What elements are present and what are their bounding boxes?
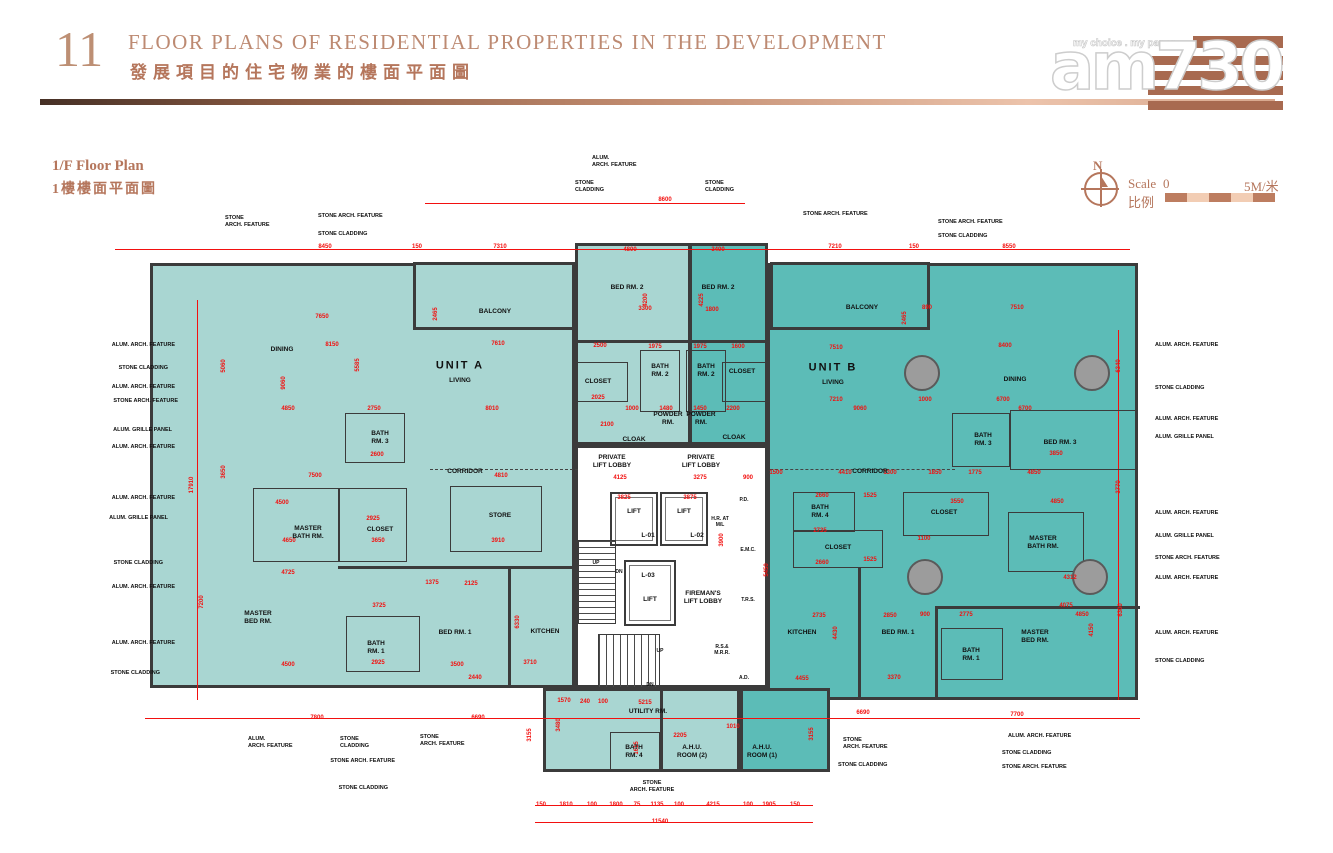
dimension-label: 240 <box>580 699 590 705</box>
dimension-label: 8010 <box>485 406 498 412</box>
dimension-label: 7510 <box>1010 305 1023 311</box>
dimension-label: 2735 <box>813 528 826 534</box>
finish-callout-label: STONE ARCH. FEATURE <box>630 780 675 794</box>
dimension-label: 4410 <box>838 470 851 476</box>
dimension-label: 7500 <box>308 473 321 479</box>
dimension-label: 8450 <box>318 244 331 250</box>
dimension-label: 2465 <box>902 311 908 324</box>
dimension-label: 100 <box>598 699 608 705</box>
dimension-label: 1100 <box>917 536 930 542</box>
dimension-label: 4850 <box>1050 499 1063 505</box>
room-label: STORE <box>489 512 511 520</box>
dimension-label: 3900 <box>719 533 725 546</box>
finish-callout-label: STONE ARCH. FEATURE <box>843 737 888 751</box>
room-label: CORRIDOR <box>852 468 887 476</box>
room-label: BATH RM. 1 <box>962 647 980 663</box>
dimension-label: 1905 <box>762 802 775 808</box>
dimension-label: 7800 <box>310 715 323 721</box>
room-label: BED RM. 1 <box>439 629 472 637</box>
dimension-label: 2200 <box>726 406 739 412</box>
dimension-label: 150 <box>790 802 800 808</box>
room-label: CLOSET <box>931 509 957 517</box>
room-label: UP <box>657 648 664 654</box>
dimension-label: 1800 <box>609 802 622 808</box>
dimension-label: 1810 <box>559 802 572 808</box>
dimension-label: 2205 <box>673 733 686 739</box>
finish-callout-label: STONE ARCH. FEATURE <box>113 398 178 405</box>
room-label: DN <box>646 682 653 688</box>
dimension-label: 6690 <box>856 710 869 716</box>
dimension-label: 3370 <box>887 675 900 681</box>
room-label: MASTER BATH RM. <box>1027 535 1058 551</box>
partition-wall <box>338 566 578 569</box>
dimension-label: 7210 <box>829 397 842 403</box>
finish-callout-label: ALUM. ARCH. FEATURE <box>1155 416 1218 423</box>
dimension-label: 4810 <box>494 473 507 479</box>
dimension-label: 3725 <box>372 603 385 609</box>
dimension-label: 900 <box>920 612 930 618</box>
room-label: POWDER RM. <box>653 411 682 427</box>
dimension-label: 2025 <box>591 395 604 401</box>
dimension-label: 8550 <box>1002 244 1015 250</box>
dimension-label: 1775 <box>968 470 981 476</box>
dimension-label: 7210 <box>828 244 841 250</box>
dimension-label: 7200 <box>199 595 205 608</box>
finish-callout-label: STONE CLADDING <box>838 762 887 769</box>
room-label: CLOAK <box>622 436 645 444</box>
room-label: UP <box>593 560 600 566</box>
finish-callout-label: ALUM. GRILLE PANEL <box>109 515 168 522</box>
finish-callout-label: ALUM. ARCH. FEATURE <box>112 495 175 502</box>
finish-callout-label: STONE CLADDING <box>575 180 604 194</box>
dimension-label: 2465 <box>433 307 439 320</box>
dimension-line <box>145 718 1140 719</box>
dimension-label: 1975 <box>648 344 661 350</box>
dimension-label: 900 <box>743 475 753 481</box>
room-label: CLOAK <box>722 434 745 442</box>
dimension-label: 4215 <box>706 802 719 808</box>
dimension-label: 17910 <box>189 477 195 494</box>
finish-callout-label: ALUM. ARCH. FEATURE <box>592 155 637 169</box>
dimension-label: 150 <box>909 244 919 250</box>
structural-column <box>904 355 940 391</box>
room-label: KITCHEN <box>531 628 560 636</box>
dimension-label: 9060 <box>281 376 287 389</box>
finish-callout-label: STONE CLADDING <box>938 233 987 240</box>
dimension-line <box>425 203 745 204</box>
dimension-label: 4075 <box>1059 603 1072 609</box>
dimension-label: 5450 <box>764 563 770 576</box>
dimension-label: 2925 <box>371 660 384 666</box>
room-label: R.S.& M.R.R. <box>714 644 730 656</box>
finish-callout-label: ALUM. ARCH. FEATURE <box>112 384 175 391</box>
dimension-label: 4430 <box>833 626 839 639</box>
dimension-label: 1135 <box>650 802 663 808</box>
room-label: KITCHEN <box>788 629 817 637</box>
dimension-label: 7310 <box>493 244 506 250</box>
finish-callout-label: STONE ARCH. FEATURE <box>330 758 395 765</box>
dimension-label: 3400 <box>711 247 724 253</box>
room-label: BALCONY <box>479 308 511 316</box>
dimension-label: 2600 <box>370 452 383 458</box>
dimension-label: 9060 <box>853 406 866 412</box>
dimension-label: 2100 <box>600 422 613 428</box>
brochure-page: { "page":{"number":"11", "title_en":"FLO… <box>0 0 1333 853</box>
room-label: BED RM. 2 <box>611 284 644 292</box>
dimension-label: 1600 <box>731 344 744 350</box>
room-label: A.H.U. ROOM (1) <box>747 744 777 760</box>
dimension-label: 3650 <box>221 465 227 478</box>
room-label: L-03 <box>641 572 654 580</box>
dimension-label: 6300 <box>1118 603 1124 616</box>
dimension-label: 3300 <box>638 306 651 312</box>
room-label: A.H.U. ROOM (2) <box>677 744 707 760</box>
dimension-label: 4312 <box>1063 575 1076 581</box>
finish-callout-label: STONE ARCH. FEATURE <box>318 213 383 220</box>
dimension-label: 2440 <box>468 675 481 681</box>
finish-callout-label: ALUM. ARCH. FEATURE <box>1155 510 1218 517</box>
finish-callout-label: STONE ARCH. FEATURE <box>1155 555 1220 562</box>
dimension-label: 2775 <box>959 612 972 618</box>
room-label: UTILITY RM. <box>629 708 667 716</box>
dimension-label: 5585 <box>355 358 361 371</box>
finish-callout-label: ALUM. ARCH. FEATURE <box>248 736 293 750</box>
finish-callout-label: STONE CLADDING <box>1155 385 1204 392</box>
finish-callout-label: ALUM. ARCH. FEATURE <box>1155 630 1218 637</box>
room-label: CORRIDOR <box>447 468 482 476</box>
finish-callout-label: STONE CLADDING <box>318 231 367 238</box>
dimension-label: 1850 <box>928 470 941 476</box>
room-partition <box>686 350 726 412</box>
dimension-label: 5060 <box>221 359 227 372</box>
finish-callout-label: STONE ARCH. FEATURE <box>938 219 1003 226</box>
dimension-label: 3825 <box>617 495 630 501</box>
finish-callout-label: STONE CLADDING <box>119 365 168 372</box>
dimension-label: 3650 <box>371 538 384 544</box>
room-label: L-02 <box>690 532 703 540</box>
dimension-label: 3850 <box>1049 451 1062 457</box>
room-label: PRIVATE LIFT LOBBY <box>593 454 631 470</box>
dimension-label: 75 <box>634 802 641 808</box>
dimension-label: 4850 <box>281 406 294 412</box>
finish-callout-label: STONE ARCH. FEATURE <box>803 211 868 218</box>
room-label: UNIT B <box>809 361 858 374</box>
room-label: FIREMAN'S LIFT LOBBY <box>684 590 722 606</box>
dimension-label: 3155 <box>809 727 815 740</box>
room-label: BALCONY <box>846 304 878 312</box>
finish-callout-label: STONE ARCH. FEATURE <box>420 734 465 748</box>
room-label: P.D. <box>739 497 748 503</box>
dimension-label: 100 <box>587 802 597 808</box>
finish-callout-label: ALUM. ARCH. FEATURE <box>112 640 175 647</box>
partition-wall <box>858 568 861 700</box>
dimension-label: 3155 <box>527 728 533 741</box>
room-label: BATH RM. 2 <box>651 363 669 379</box>
staircase <box>598 634 660 688</box>
dimension-label: 100 <box>674 802 684 808</box>
room-label: BATH RM. 3 <box>371 430 389 446</box>
dimension-label: 3875 <box>683 495 696 501</box>
dimension-label: 3275 <box>693 475 706 481</box>
dimension-label: 4850 <box>1075 612 1088 618</box>
dimension-label: 1975 <box>693 344 706 350</box>
room-label: T.R.S. <box>741 597 755 603</box>
partition-wall <box>935 606 938 700</box>
room-label: CLOSET <box>825 544 851 552</box>
dimension-label: 4725 <box>281 570 294 576</box>
dimension-label: 8400 <box>998 343 1011 349</box>
dimension-label: 1000 <box>918 397 931 403</box>
room-partition <box>640 350 680 412</box>
structural-column <box>907 559 943 595</box>
room-label: BATH RM. 3 <box>974 432 992 448</box>
dimension-label: 2500 <box>593 343 606 349</box>
room-label: MASTER BED RM. <box>1021 629 1048 645</box>
dimension-label: 890 <box>922 305 932 311</box>
room-label: POWDER RM. <box>686 411 715 427</box>
partition-wall <box>508 568 511 688</box>
room-label: BED RM. 2 <box>702 284 735 292</box>
room-label: LIFT <box>677 508 691 516</box>
staircase <box>578 540 616 624</box>
dimension-label: 2925 <box>366 516 379 522</box>
dimension-label: 6340 <box>1116 359 1122 372</box>
finish-callout-label: ALUM. ARCH. FEATURE <box>1155 342 1218 349</box>
structural-column <box>1074 355 1110 391</box>
finish-callout-label: STONE CLADDING <box>339 785 388 792</box>
finish-callout-label: ALUM. GRILLE PANEL <box>113 427 172 434</box>
room-label: MASTER BED RM. <box>244 610 271 626</box>
dimension-label: 1570 <box>557 698 570 704</box>
room-label: BED RM. 1 <box>882 629 915 637</box>
dimension-label: 3910 <box>491 538 504 544</box>
room-label: DINING <box>1004 376 1027 384</box>
dimension-label: 2750 <box>367 406 380 412</box>
finish-callout-label: STONE CLADDING <box>1155 658 1204 665</box>
room-label: CLOSET <box>367 526 393 534</box>
dimension-label: 1525 <box>863 493 876 499</box>
room-label: CLOSET <box>585 378 611 386</box>
room-label: H.R. AT M/L <box>711 516 729 528</box>
room-label: CLOSET <box>729 368 755 376</box>
dimension-label: 2850 <box>883 613 896 619</box>
dimension-label: 3550 <box>950 499 963 505</box>
dimension-label: 4500 <box>281 662 294 668</box>
finish-callout-label: ALUM. ARCH. FEATURE <box>112 342 175 349</box>
room-label: A.D. <box>739 675 749 681</box>
dimension-label: 1375 <box>425 580 438 586</box>
room-label: BATH RM. 1 <box>367 640 385 656</box>
finish-callout-label: ALUM. ARCH. FEATURE <box>1008 733 1071 740</box>
finish-callout-label: STONE CLADDING <box>705 180 734 194</box>
dimension-label: 11540 <box>652 819 668 825</box>
dimension-label: 4225 <box>699 293 705 306</box>
dimension-label: 150 <box>536 802 546 808</box>
dimension-line <box>197 300 198 700</box>
finish-callout-label: STONE CLADDING <box>114 560 163 567</box>
dimension-label: 8150 <box>325 342 338 348</box>
room-label: DINING <box>271 346 294 354</box>
partition-wall <box>660 688 663 772</box>
dimension-label: 4800 <box>623 247 636 253</box>
dimension-label: 7610 <box>491 341 504 347</box>
finish-callout-label: ALUM. GRILLE PANEL <box>1155 533 1214 540</box>
dimension-label: 4850 <box>1027 470 1040 476</box>
dimension-label: 3480 <box>556 718 562 731</box>
dimension-label: 1500 <box>769 470 782 476</box>
dimension-label: 6700 <box>996 397 1009 403</box>
dimension-label: 2735 <box>812 613 825 619</box>
dimension-label: 4125 <box>613 475 626 481</box>
structural-column <box>1072 559 1108 595</box>
finish-callout-label: STONE CLADDING <box>111 670 160 677</box>
room-label: LIVING <box>449 377 471 385</box>
dimension-label: 7650 <box>315 314 328 320</box>
finish-callout-label: ALUM. GRILLE PANEL <box>1155 434 1214 441</box>
finish-callout-label: ALUM. ARCH. FEATURE <box>1155 575 1218 582</box>
dimension-label: 3770 <box>1116 480 1122 493</box>
dimension-label: 1525 <box>863 557 876 563</box>
dimension-label: 7700 <box>1010 712 1023 718</box>
room-partition <box>339 488 407 562</box>
room-label: E.M.C. <box>740 547 755 553</box>
room-label: MASTER BATH RM. <box>292 525 323 541</box>
dimension-label: 4200 <box>643 293 649 306</box>
dimension-label: 1800 <box>705 307 718 313</box>
dimension-label: 100 <box>743 802 753 808</box>
room-label: BATH RM. 4 <box>811 504 829 520</box>
dimension-label: 1010 <box>726 724 739 730</box>
dimension-label: 8600 <box>658 197 671 203</box>
dimension-label: 3710 <box>523 660 536 666</box>
dimension-label: 4500 <box>275 500 288 506</box>
finish-callout-label: ALUM. ARCH. FEATURE <box>112 444 175 451</box>
finish-callout-label: STONE ARCH. FEATURE <box>1002 764 1067 771</box>
dimension-label: 4455 <box>795 676 808 682</box>
dimension-line <box>535 822 813 823</box>
dimension-label: 3500 <box>450 662 463 668</box>
finish-callout-label: STONE ARCH. FEATURE <box>225 215 270 229</box>
room-label: BED RM. 3 <box>1044 439 1077 447</box>
room-label: BATH RM. 2 <box>697 363 715 379</box>
finish-callout-label: STONE CLADDING <box>1002 750 1051 757</box>
dimension-label: 1000 <box>625 406 638 412</box>
lift-shaft <box>624 560 676 626</box>
finish-callout-label: ALUM. ARCH. FEATURE <box>112 584 175 591</box>
room-label: LIFT <box>627 508 641 516</box>
floor-plan-drawing: 8600845015073107210150855017910506036507… <box>0 0 1333 853</box>
finish-callout-label: STONE CLADDING <box>340 736 369 750</box>
dimension-label: 6700 <box>1018 406 1031 412</box>
dimension-label: 2660 <box>815 560 828 566</box>
dimension-label: 6690 <box>471 715 484 721</box>
room-label: BATH RM. 4 <box>625 744 643 760</box>
room-label: LIVING <box>822 379 844 387</box>
dimension-line <box>1118 330 1119 700</box>
room-label: UNIT A <box>436 359 484 372</box>
dimension-label: 5215 <box>638 700 651 706</box>
dimension-label: 2660 <box>815 493 828 499</box>
room-label: LIFT <box>643 596 657 604</box>
room-label: L-01 <box>641 532 654 540</box>
dimension-label: 6330 <box>515 615 521 628</box>
dimension-label: 2125 <box>464 581 477 587</box>
room-label: DN <box>615 569 622 575</box>
dimension-label: 150 <box>412 244 422 250</box>
dimension-label: 4150 <box>1089 623 1095 636</box>
partition-wall <box>935 606 1140 609</box>
room-label: PRIVATE LIFT LOBBY <box>682 454 720 470</box>
dimension-label: 7510 <box>829 345 842 351</box>
